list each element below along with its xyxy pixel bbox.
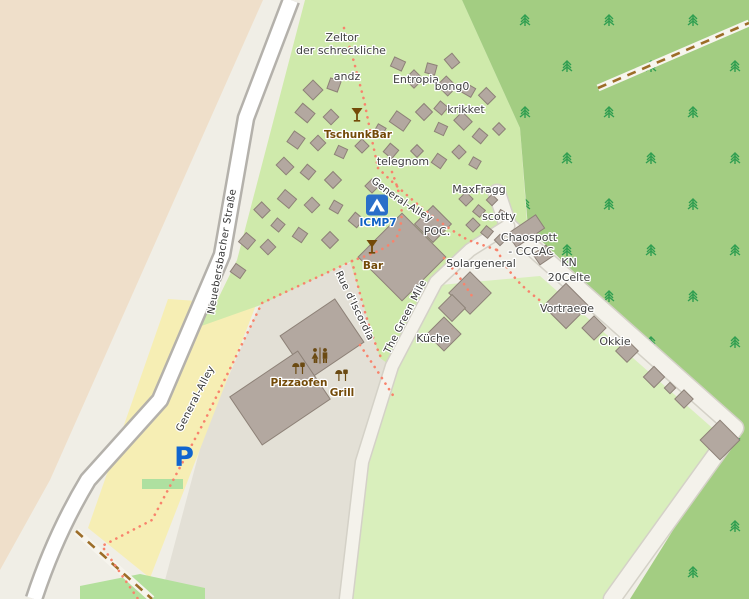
label-okkie: Okkie	[599, 335, 630, 348]
label-andz: andz	[334, 70, 361, 83]
label-zeltor-line1: Zeltor	[326, 31, 359, 44]
label-pizzaofen: Pizzaofen	[271, 377, 328, 389]
campsite-icon	[366, 195, 388, 216]
label-zeltor-line2: der schreckliche	[296, 44, 386, 57]
label-entropia: Entropia	[393, 73, 439, 86]
parking-symbol: P	[174, 442, 194, 473]
label-bong0: bong0	[435, 80, 470, 93]
label-maxfragg: MaxFragg	[452, 183, 506, 196]
map-canvas[interactable]: Zeltor der schreckliche andz Entropia bo…	[0, 0, 749, 599]
label-grill: Grill	[330, 387, 355, 399]
label-chaospott: Chaospott	[501, 231, 558, 244]
label-icmp7: ICMP7	[359, 217, 396, 229]
label-20celte: 20Celte	[548, 271, 591, 284]
label-vortraege: Vortraege	[540, 302, 594, 315]
label-telegnom: telegnom	[377, 155, 429, 168]
label-solargeneral: Solargeneral	[446, 257, 516, 270]
label-kn: KN	[561, 256, 576, 269]
label-tschunkbar: TschunkBar	[324, 129, 393, 141]
label-kueche: Küche	[416, 332, 450, 345]
label-scotty: scotty	[482, 210, 516, 223]
map-viewport[interactable]: Zeltor der schreckliche andz Entropia bo…	[0, 0, 749, 599]
grass-patch	[142, 479, 183, 489]
label-bar: Bar	[363, 260, 384, 272]
label-krikket: krikket	[447, 103, 485, 116]
label-poc: POC.	[424, 225, 450, 238]
